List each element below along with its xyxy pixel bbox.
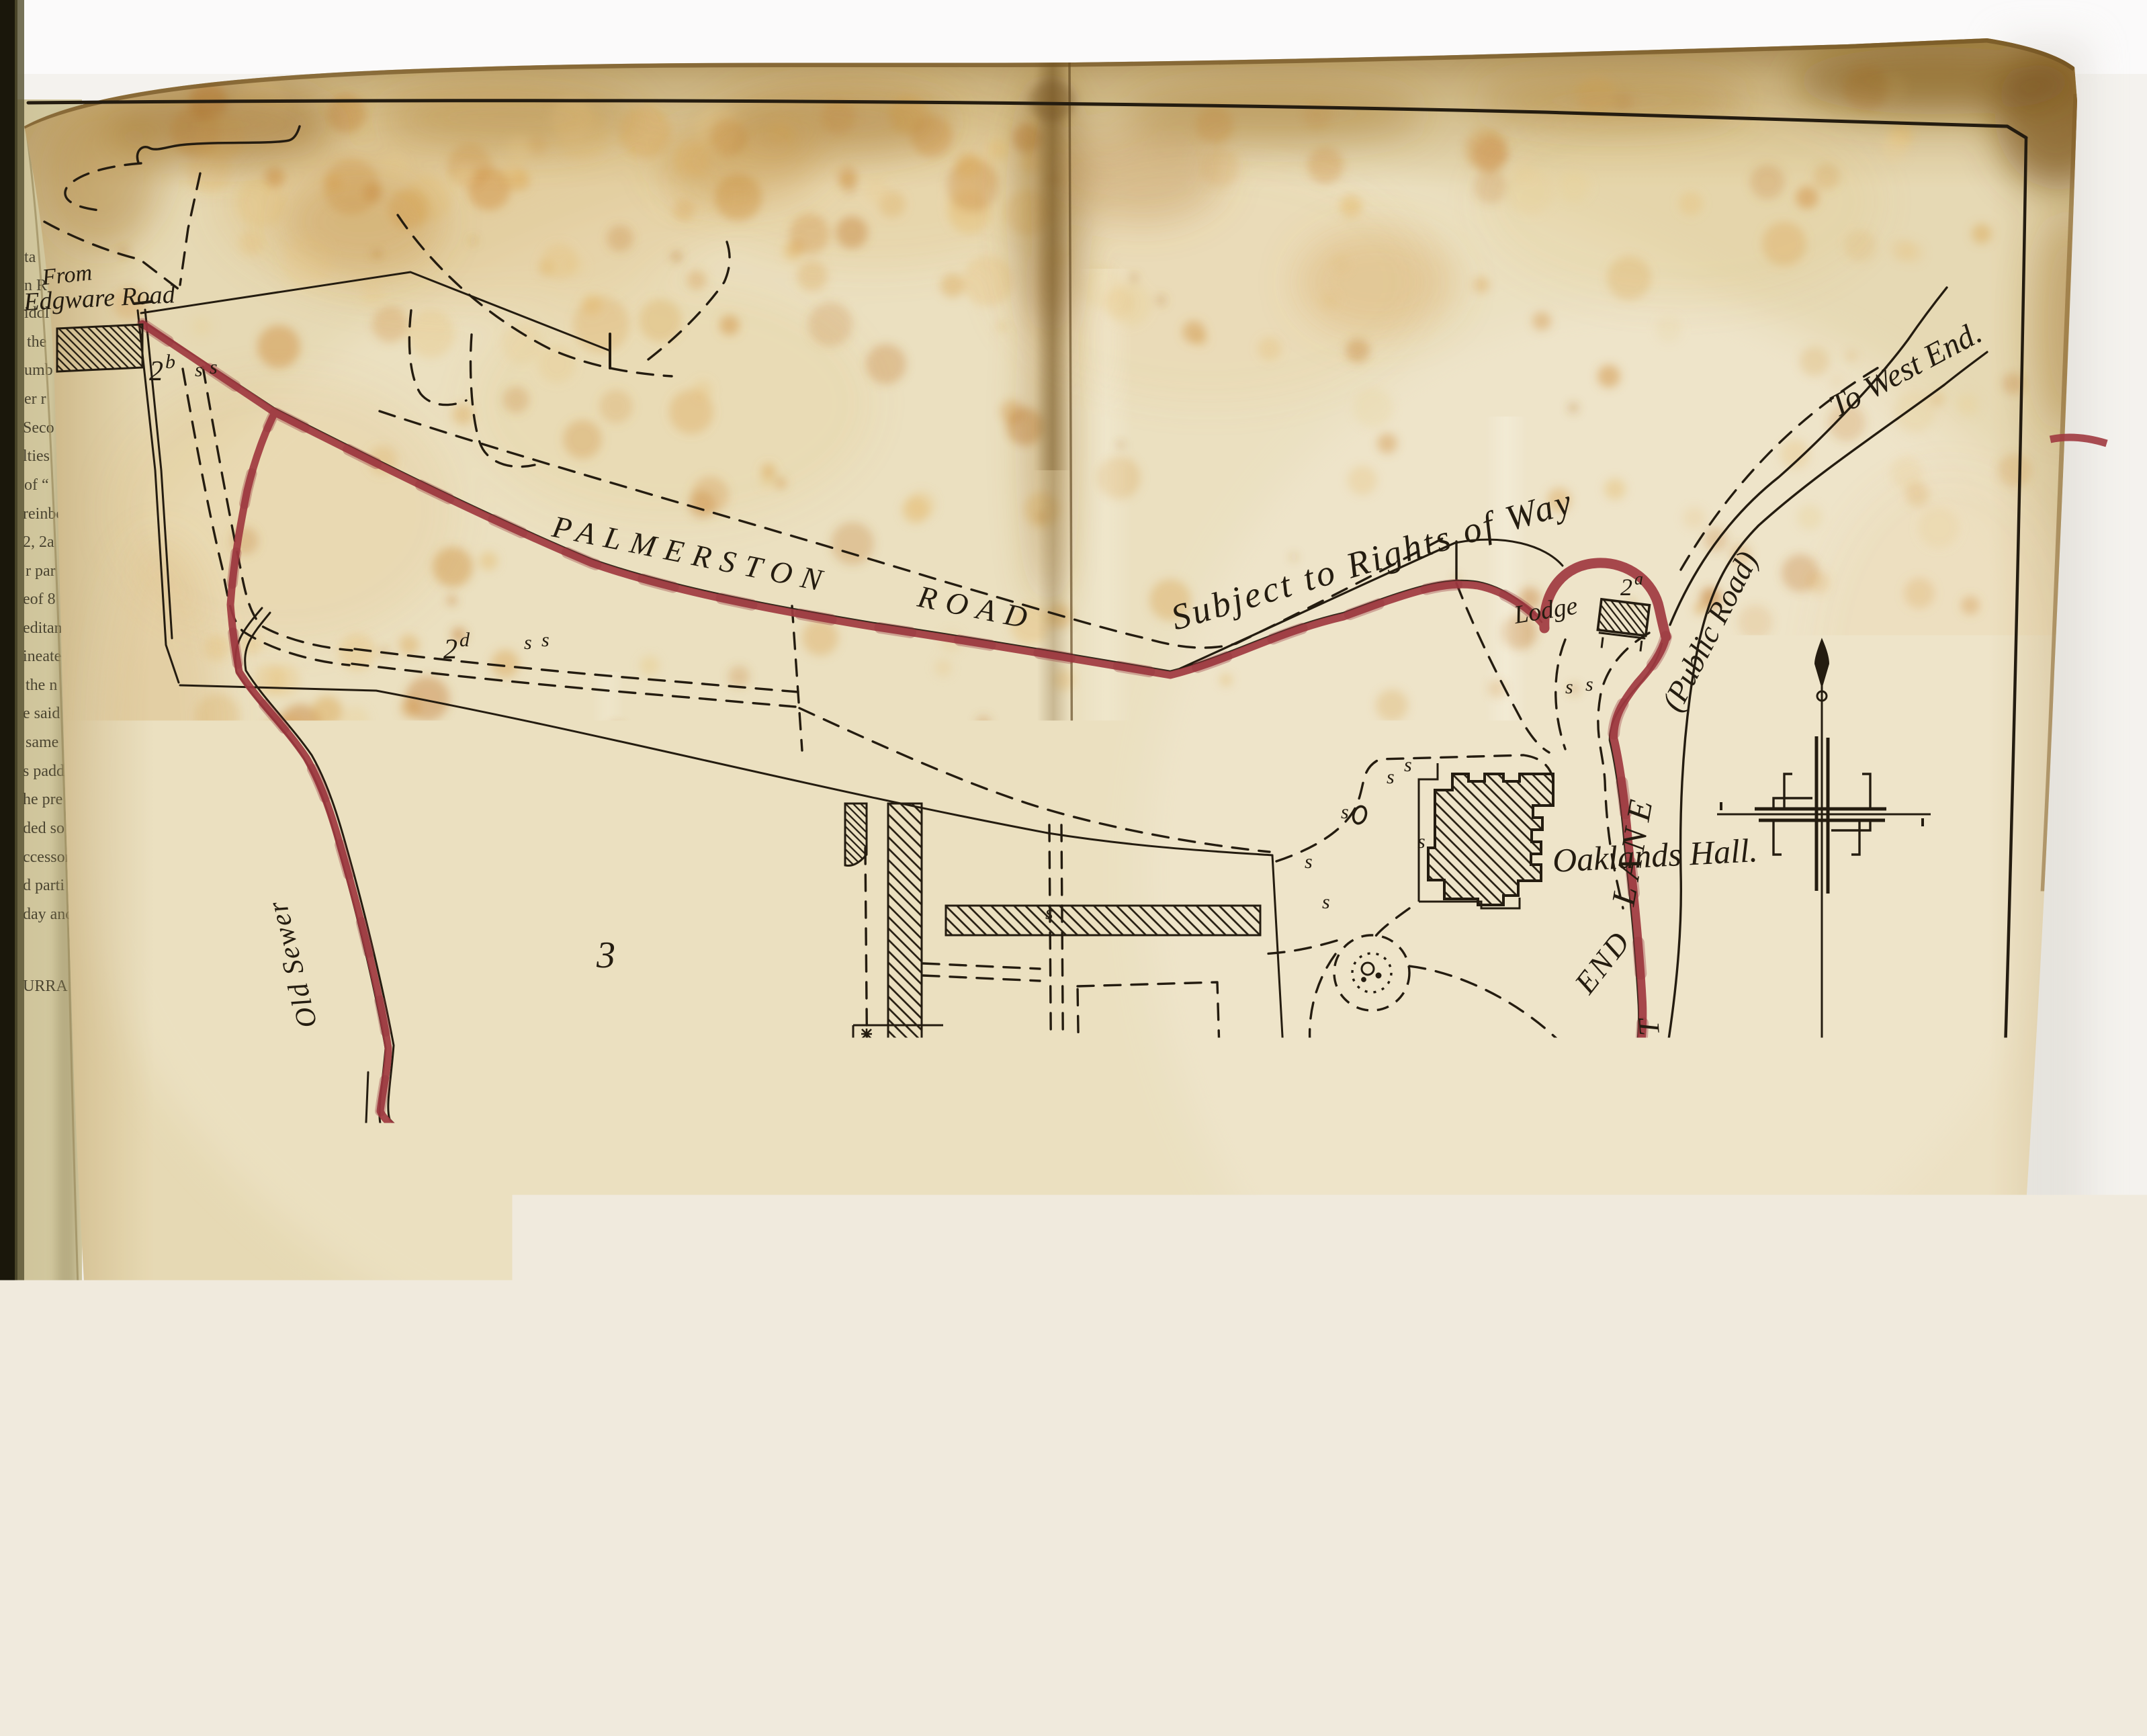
svg-text:2: 2 xyxy=(1271,1066,1286,1100)
svg-text:ta: ta xyxy=(24,249,36,266)
svg-text:s: s xyxy=(1135,1031,1143,1053)
svg-text:s: s xyxy=(1322,891,1330,913)
svg-text:3: 3 xyxy=(1557,1126,1567,1148)
svg-text:2: 2 xyxy=(1518,1174,1530,1199)
svg-text:s: s xyxy=(1565,676,1573,698)
svg-text:ineate: ineate xyxy=(23,648,61,665)
svg-text:the n: the n xyxy=(26,677,57,694)
svg-text:3: 3 xyxy=(1485,1133,1496,1155)
svg-text:editan: editan xyxy=(23,619,62,637)
svg-text:s: s xyxy=(1182,1135,1190,1158)
svg-text:s: s xyxy=(1305,851,1313,873)
svg-text:WEST: WEST xyxy=(1632,1012,1671,1115)
svg-text:s: s xyxy=(1251,1091,1259,1113)
svg-text:c: c xyxy=(1409,1172,1419,1197)
svg-text:s: s xyxy=(1387,766,1395,788)
svg-text:s: s xyxy=(541,629,550,651)
svg-text:b: b xyxy=(165,351,175,373)
svg-text:3: 3 xyxy=(596,935,615,976)
svg-text:a: a xyxy=(1531,1169,1539,1186)
svg-text:umb: umb xyxy=(24,361,53,379)
svg-text:3: 3 xyxy=(1483,1091,1493,1113)
svg-text:eof 8: eof 8 xyxy=(23,591,56,608)
svg-text:e: e xyxy=(1288,1061,1298,1085)
svg-text:3: 3 xyxy=(1018,1118,1032,1148)
svg-text:2: 2 xyxy=(149,356,163,387)
svg-text:s: s xyxy=(210,356,218,378)
svg-text:2: 2 xyxy=(443,634,457,665)
svg-text:Lodge: Lodge xyxy=(1467,1213,1534,1246)
svg-text:s: s xyxy=(524,632,532,654)
svg-text:s: s xyxy=(1341,801,1349,823)
svg-text:2: 2 xyxy=(1392,1178,1407,1211)
svg-text:s: s xyxy=(1426,1084,1434,1106)
svg-text:G: G xyxy=(62,1518,84,1552)
svg-text:s: s xyxy=(1417,830,1426,853)
svg-text:same: same xyxy=(26,734,58,751)
svg-text:s: s xyxy=(1404,754,1412,776)
svg-text:s: s xyxy=(1180,1061,1188,1084)
svg-text:d: d xyxy=(459,629,470,651)
svg-text:r par: r par xyxy=(26,562,56,580)
svg-text:s: s xyxy=(195,359,203,381)
svg-text:2, 2a: 2, 2a xyxy=(23,533,54,551)
svg-text:s: s xyxy=(1052,1131,1060,1154)
svg-text:s: s xyxy=(1045,902,1053,924)
svg-text:er r: er r xyxy=(24,390,46,408)
svg-text:e said: e said xyxy=(23,705,60,722)
svg-text:a: a xyxy=(1634,569,1643,589)
svg-text:s: s xyxy=(1585,673,1593,695)
svg-text:of “: of “ xyxy=(24,476,49,494)
svg-text:lties: lties xyxy=(23,447,50,465)
svg-text:2: 2 xyxy=(1620,574,1632,601)
